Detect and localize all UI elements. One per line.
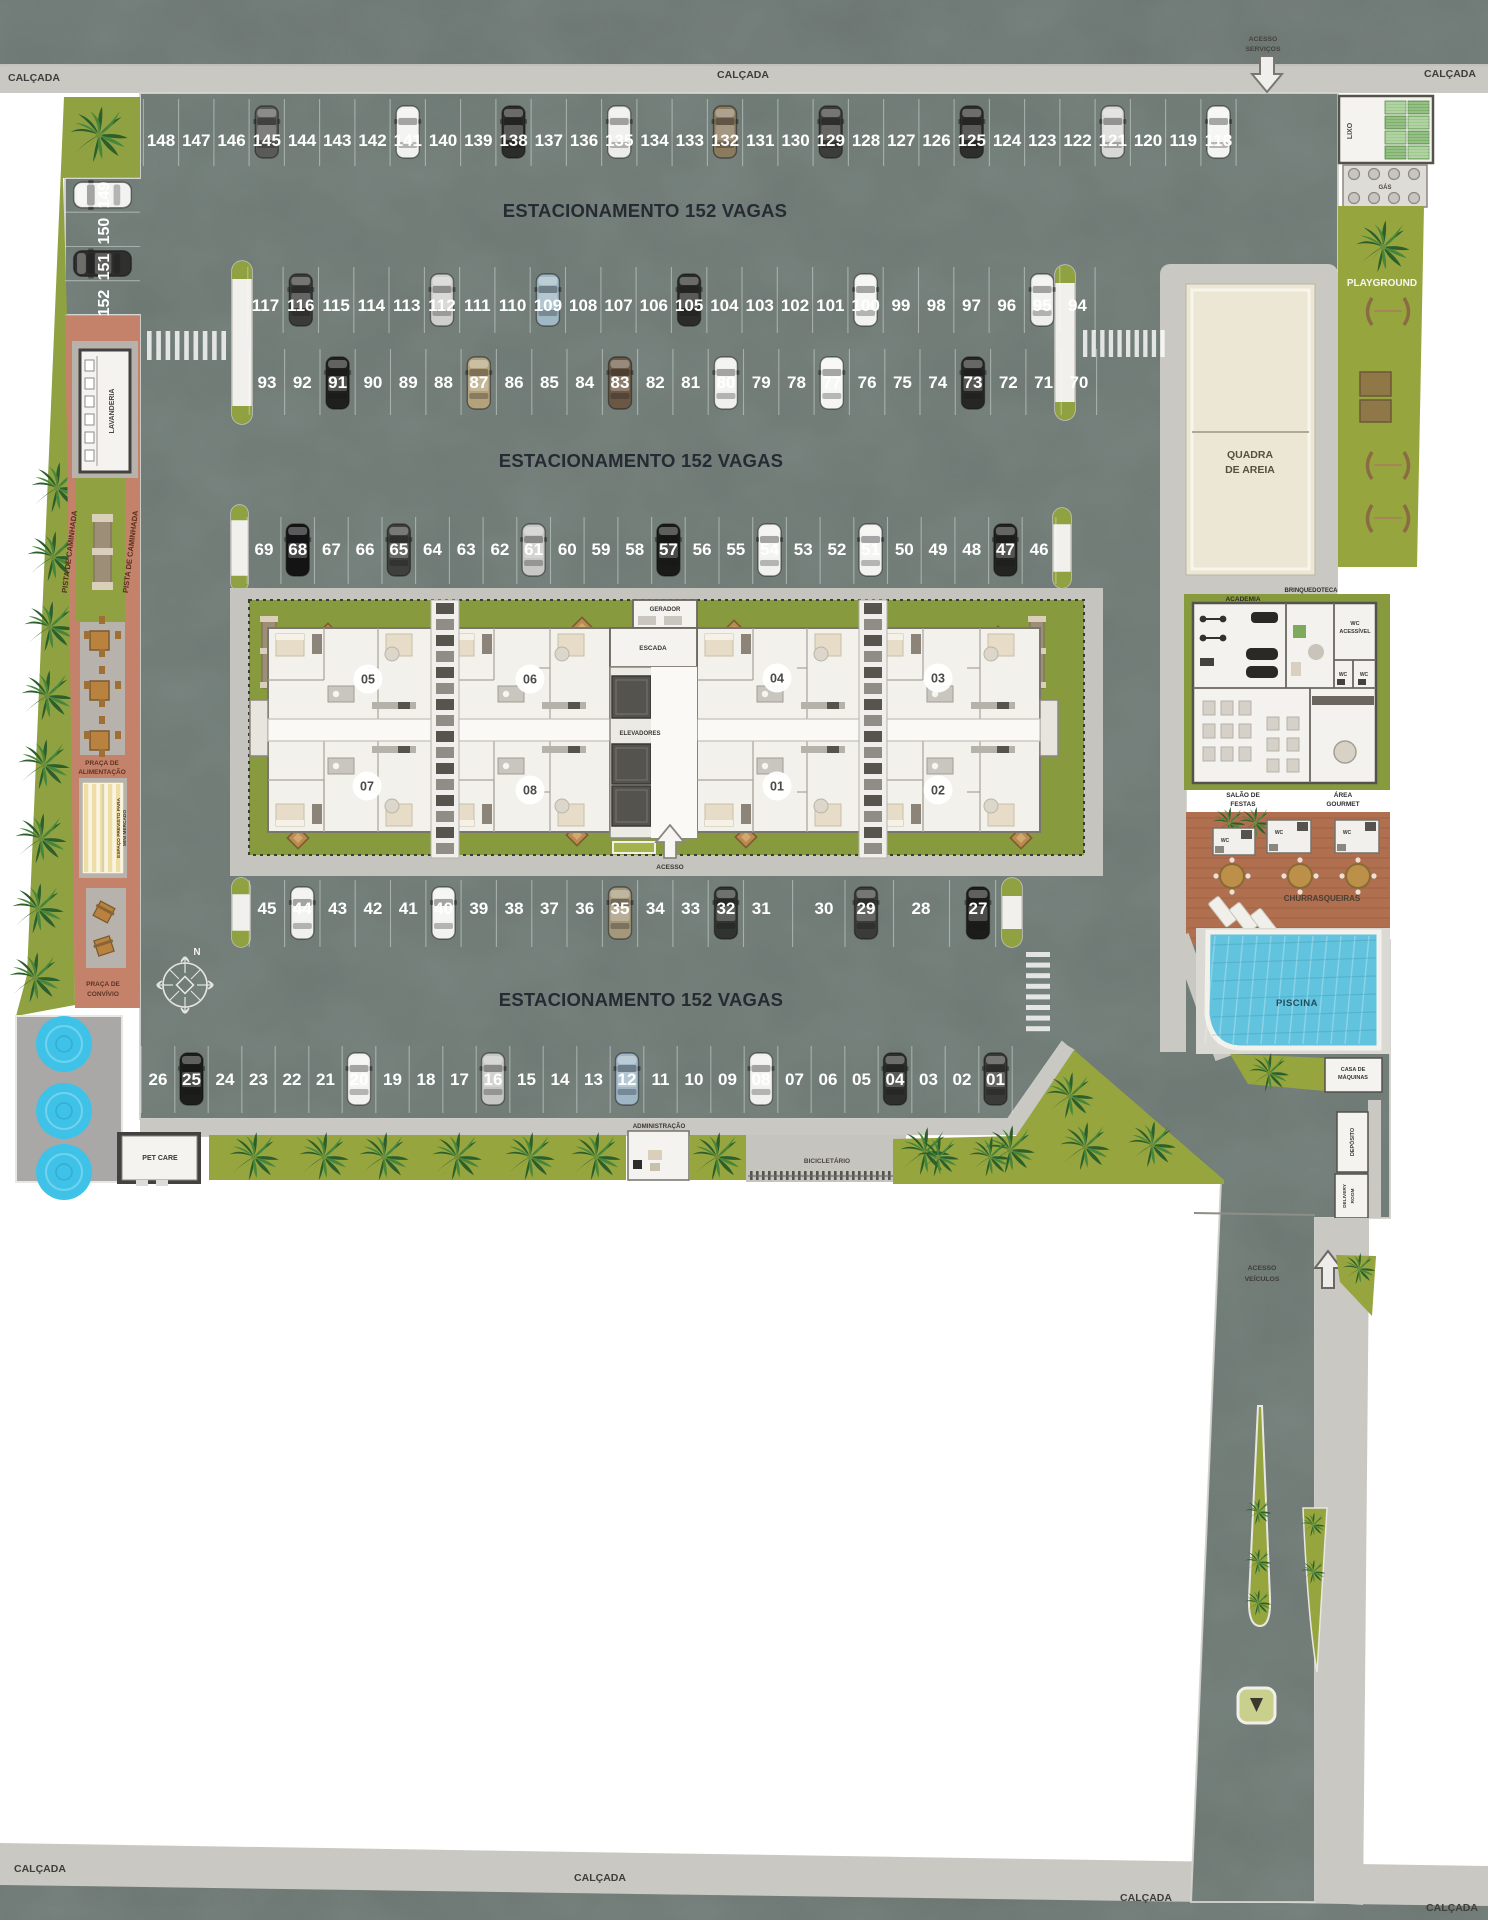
svg-text:WC: WC <box>1360 672 1369 678</box>
svg-text:68: 68 <box>288 540 307 559</box>
svg-text:70: 70 <box>1069 373 1088 392</box>
svg-text:16: 16 <box>484 1070 503 1089</box>
svg-text:MÁQUINAS: MÁQUINAS <box>1338 1074 1368 1081</box>
svg-text:CHURRASQUEIRAS: CHURRASQUEIRAS <box>1284 894 1361 903</box>
svg-text:21: 21 <box>316 1070 335 1089</box>
svg-text:143: 143 <box>323 131 351 150</box>
svg-text:CALÇADA: CALÇADA <box>717 69 769 81</box>
svg-text:89: 89 <box>399 373 418 392</box>
svg-text:109: 109 <box>534 296 562 315</box>
svg-text:50: 50 <box>895 540 914 559</box>
svg-text:110: 110 <box>499 296 526 315</box>
svg-text:113: 113 <box>393 296 420 315</box>
svg-text:LAVANDERIA: LAVANDERIA <box>109 389 116 434</box>
svg-text:52: 52 <box>827 540 846 559</box>
svg-text:CALÇADA: CALÇADA <box>1424 68 1476 80</box>
svg-text:CALÇADA: CALÇADA <box>14 1863 66 1875</box>
svg-text:123: 123 <box>1028 131 1056 150</box>
svg-text:92: 92 <box>293 373 312 392</box>
svg-text:61: 61 <box>524 540 543 559</box>
svg-text:PET CARE: PET CARE <box>142 1155 178 1162</box>
svg-text:103: 103 <box>746 296 774 315</box>
svg-text:DEPÓSITO: DEPÓSITO <box>1348 1127 1356 1156</box>
svg-text:137: 137 <box>535 131 563 150</box>
svg-text:132: 132 <box>711 131 739 150</box>
svg-text:136: 136 <box>570 131 598 150</box>
svg-text:120: 120 <box>1134 131 1162 150</box>
svg-text:PRAÇA DE: PRAÇA DE <box>86 981 120 988</box>
svg-text:59: 59 <box>592 540 611 559</box>
svg-text:44: 44 <box>293 899 312 918</box>
svg-text:CALÇADA: CALÇADA <box>1426 1902 1478 1914</box>
svg-text:02: 02 <box>931 784 945 798</box>
svg-text:25: 25 <box>182 1070 201 1089</box>
svg-text:ESTACIONAMENTO 152 VAGAS: ESTACIONAMENTO 152 VAGAS <box>499 989 783 1010</box>
svg-text:57: 57 <box>659 540 678 559</box>
svg-text:131: 131 <box>746 131 774 150</box>
svg-text:141: 141 <box>394 131 422 150</box>
svg-text:47: 47 <box>996 540 1015 559</box>
svg-text:67: 67 <box>322 540 341 559</box>
svg-text:06: 06 <box>819 1070 838 1089</box>
svg-text:108: 108 <box>569 296 597 315</box>
svg-text:85: 85 <box>540 373 559 392</box>
svg-text:75: 75 <box>893 373 912 392</box>
svg-text:87: 87 <box>469 373 488 392</box>
svg-text:77: 77 <box>822 373 841 392</box>
svg-text:115: 115 <box>322 296 349 315</box>
svg-text:17: 17 <box>450 1070 469 1089</box>
svg-text:69: 69 <box>255 540 274 559</box>
svg-text:PRAÇA DE: PRAÇA DE <box>85 760 119 767</box>
svg-text:74: 74 <box>928 373 947 392</box>
svg-text:ÁREA: ÁREA <box>1334 790 1353 799</box>
svg-text:79: 79 <box>752 373 771 392</box>
svg-text:03: 03 <box>931 672 945 686</box>
svg-text:07: 07 <box>785 1070 804 1089</box>
svg-text:ACESSO: ACESSO <box>656 864 683 871</box>
svg-text:13: 13 <box>584 1070 603 1089</box>
svg-text:ACESSÍVEL: ACESSÍVEL <box>1339 627 1371 635</box>
svg-text:117: 117 <box>252 296 279 315</box>
svg-text:QUADRA: QUADRA <box>1227 449 1273 461</box>
svg-text:04: 04 <box>770 672 784 686</box>
svg-text:88: 88 <box>434 373 453 392</box>
svg-text:56: 56 <box>693 540 712 559</box>
svg-text:ELEVADORES: ELEVADORES <box>620 731 661 737</box>
svg-text:01: 01 <box>770 780 784 794</box>
svg-text:101: 101 <box>816 296 844 315</box>
svg-text:20: 20 <box>350 1070 369 1089</box>
svg-text:133: 133 <box>676 131 704 150</box>
svg-text:WC: WC <box>1350 621 1359 627</box>
svg-text:83: 83 <box>611 373 630 392</box>
svg-text:65: 65 <box>389 540 408 559</box>
svg-text:N: N <box>193 947 200 958</box>
svg-text:ACESSO: ACESSO <box>1249 36 1278 43</box>
svg-text:19: 19 <box>383 1070 402 1089</box>
svg-text:73: 73 <box>964 373 983 392</box>
svg-text:51: 51 <box>861 540 880 559</box>
svg-text:152: 152 <box>96 290 113 317</box>
svg-text:118: 118 <box>1205 131 1232 150</box>
svg-text:27: 27 <box>969 899 988 918</box>
svg-text:111: 111 <box>464 296 491 315</box>
svg-text:03: 03 <box>919 1070 938 1089</box>
svg-text:CASA DE: CASA DE <box>1341 1067 1366 1073</box>
svg-text:VEÍCULOS: VEÍCULOS <box>1245 1274 1280 1283</box>
svg-text:134: 134 <box>640 131 669 150</box>
svg-text:GERADOR: GERADOR <box>650 607 681 613</box>
svg-text:07: 07 <box>360 780 374 794</box>
svg-text:72: 72 <box>999 373 1018 392</box>
svg-text:34: 34 <box>646 899 665 918</box>
svg-text:62: 62 <box>490 540 509 559</box>
svg-text:05: 05 <box>361 673 375 687</box>
svg-text:66: 66 <box>356 540 375 559</box>
svg-text:60: 60 <box>558 540 577 559</box>
svg-text:DELIVERY: DELIVERY <box>1342 1183 1348 1208</box>
svg-text:126: 126 <box>922 131 950 150</box>
svg-text:ESTACIONAMENTO 152 VAGAS: ESTACIONAMENTO 152 VAGAS <box>503 200 787 221</box>
svg-text:128: 128 <box>852 131 880 150</box>
svg-text:ESTACIONAMENTO 152 VAGAS: ESTACIONAMENTO 152 VAGAS <box>499 450 783 471</box>
svg-text:80: 80 <box>716 373 735 392</box>
svg-text:104: 104 <box>710 296 739 315</box>
svg-text:138: 138 <box>499 131 527 150</box>
svg-text:71: 71 <box>1034 373 1053 392</box>
svg-text:124: 124 <box>993 131 1022 150</box>
svg-text:08: 08 <box>752 1070 771 1089</box>
svg-text:29: 29 <box>857 899 876 918</box>
svg-text:63: 63 <box>457 540 476 559</box>
svg-text:39: 39 <box>469 899 488 918</box>
svg-text:99: 99 <box>891 296 910 315</box>
svg-text:91: 91 <box>328 373 347 392</box>
svg-text:24: 24 <box>216 1070 235 1089</box>
svg-text:100: 100 <box>851 296 879 315</box>
svg-text:23: 23 <box>249 1070 268 1089</box>
svg-text:31: 31 <box>752 899 771 918</box>
svg-text:30: 30 <box>815 899 834 918</box>
svg-text:ACESSO: ACESSO <box>1248 1265 1277 1272</box>
svg-text:CALÇADA: CALÇADA <box>1120 1892 1172 1904</box>
svg-text:28: 28 <box>912 899 931 918</box>
svg-text:FESTAS: FESTAS <box>1230 801 1256 808</box>
svg-text:94: 94 <box>1068 296 1087 315</box>
svg-text:43: 43 <box>328 899 347 918</box>
svg-text:40: 40 <box>434 899 453 918</box>
svg-text:150: 150 <box>96 218 113 245</box>
svg-text:135: 135 <box>605 131 633 150</box>
svg-text:ESCADA: ESCADA <box>639 645 667 652</box>
svg-text:MINI MERCADO: MINI MERCADO <box>122 810 128 847</box>
svg-text:ESPAÇO PREVISTO PARA: ESPAÇO PREVISTO PARA <box>116 797 122 858</box>
svg-text:58: 58 <box>625 540 644 559</box>
svg-text:93: 93 <box>258 373 277 392</box>
svg-text:105: 105 <box>675 296 703 315</box>
svg-text:119: 119 <box>1170 131 1197 150</box>
svg-text:42: 42 <box>363 899 382 918</box>
svg-text:81: 81 <box>681 373 700 392</box>
svg-text:139: 139 <box>464 131 492 150</box>
svg-text:54: 54 <box>760 540 779 559</box>
svg-text:WC: WC <box>1339 672 1348 678</box>
svg-text:112: 112 <box>428 296 455 315</box>
svg-text:06: 06 <box>523 673 537 687</box>
svg-text:WC: WC <box>1275 830 1284 836</box>
svg-text:149: 149 <box>96 182 113 209</box>
svg-text:90: 90 <box>363 373 382 392</box>
svg-text:PISCINA: PISCINA <box>1276 998 1318 1009</box>
svg-text:41: 41 <box>399 899 418 918</box>
svg-text:15: 15 <box>517 1070 536 1089</box>
svg-text:14: 14 <box>551 1070 570 1089</box>
svg-text:129: 129 <box>817 131 845 150</box>
svg-text:102: 102 <box>781 296 809 315</box>
svg-text:96: 96 <box>997 296 1016 315</box>
svg-text:26: 26 <box>149 1070 168 1089</box>
svg-text:46: 46 <box>1030 540 1049 559</box>
svg-text:GÁS: GÁS <box>1378 184 1391 191</box>
svg-text:97: 97 <box>962 296 981 315</box>
svg-text:127: 127 <box>887 131 915 150</box>
svg-text:78: 78 <box>787 373 806 392</box>
svg-text:SERVIÇOS: SERVIÇOS <box>1245 46 1280 53</box>
svg-text:ALIMENTAÇÃO: ALIMENTAÇÃO <box>78 767 126 776</box>
svg-text:08: 08 <box>523 784 537 798</box>
svg-text:32: 32 <box>716 899 735 918</box>
svg-text:151: 151 <box>96 254 113 281</box>
svg-text:DE AREIA: DE AREIA <box>1225 464 1275 476</box>
svg-text:35: 35 <box>611 899 630 918</box>
svg-text:BRINQUEDOTECA: BRINQUEDOTECA <box>1284 588 1338 594</box>
svg-text:48: 48 <box>962 540 981 559</box>
svg-text:142: 142 <box>358 131 386 150</box>
svg-text:55: 55 <box>726 540 745 559</box>
svg-text:LIXO: LIXO <box>1347 122 1354 139</box>
svg-text:53: 53 <box>794 540 813 559</box>
svg-text:76: 76 <box>858 373 877 392</box>
svg-text:130: 130 <box>781 131 809 150</box>
svg-text:WC: WC <box>1221 838 1230 844</box>
svg-text:114: 114 <box>358 296 386 315</box>
svg-text:PLAYGROUND: PLAYGROUND <box>1347 278 1417 289</box>
svg-text:84: 84 <box>575 373 594 392</box>
svg-text:SALÃO DE: SALÃO DE <box>1226 790 1260 799</box>
svg-text:ROOM: ROOM <box>1350 1189 1356 1204</box>
svg-text:01: 01 <box>986 1070 1005 1089</box>
svg-text:116: 116 <box>287 296 314 315</box>
svg-text:CALÇADA: CALÇADA <box>8 72 60 84</box>
svg-text:106: 106 <box>640 296 668 315</box>
svg-text:12: 12 <box>618 1070 637 1089</box>
svg-text:09: 09 <box>718 1070 737 1089</box>
svg-text:05: 05 <box>852 1070 871 1089</box>
svg-text:33: 33 <box>681 899 700 918</box>
svg-text:49: 49 <box>929 540 948 559</box>
svg-text:GOURMET: GOURMET <box>1326 801 1359 808</box>
svg-text:WC: WC <box>1343 830 1352 836</box>
svg-text:11: 11 <box>652 1070 670 1089</box>
svg-text:36: 36 <box>575 899 594 918</box>
svg-text:147: 147 <box>182 131 210 150</box>
svg-text:95: 95 <box>1033 296 1052 315</box>
svg-text:ADMINISTRAÇÃO: ADMINISTRAÇÃO <box>633 1123 686 1130</box>
svg-text:CALÇADA: CALÇADA <box>574 1872 626 1884</box>
svg-text:45: 45 <box>258 899 277 918</box>
svg-text:145: 145 <box>253 131 281 150</box>
svg-text:BICICLETÁRIO: BICICLETÁRIO <box>804 1156 850 1165</box>
svg-text:146: 146 <box>217 131 245 150</box>
svg-text:38: 38 <box>505 899 524 918</box>
svg-text:10: 10 <box>685 1070 704 1089</box>
svg-text:125: 125 <box>958 131 986 150</box>
svg-text:64: 64 <box>423 540 442 559</box>
svg-text:107: 107 <box>604 296 632 315</box>
svg-text:144: 144 <box>288 131 317 150</box>
svg-text:18: 18 <box>417 1070 436 1089</box>
svg-text:86: 86 <box>505 373 524 392</box>
svg-text:98: 98 <box>927 296 946 315</box>
svg-text:CONVÍVIO: CONVÍVIO <box>87 989 119 998</box>
svg-text:140: 140 <box>429 131 457 150</box>
svg-text:121: 121 <box>1099 131 1127 150</box>
svg-text:22: 22 <box>283 1070 302 1089</box>
svg-text:82: 82 <box>646 373 665 392</box>
svg-text:122: 122 <box>1063 131 1091 150</box>
svg-text:148: 148 <box>147 131 175 150</box>
svg-text:37: 37 <box>540 899 559 918</box>
svg-text:02: 02 <box>953 1070 972 1089</box>
svg-text:04: 04 <box>886 1070 905 1089</box>
